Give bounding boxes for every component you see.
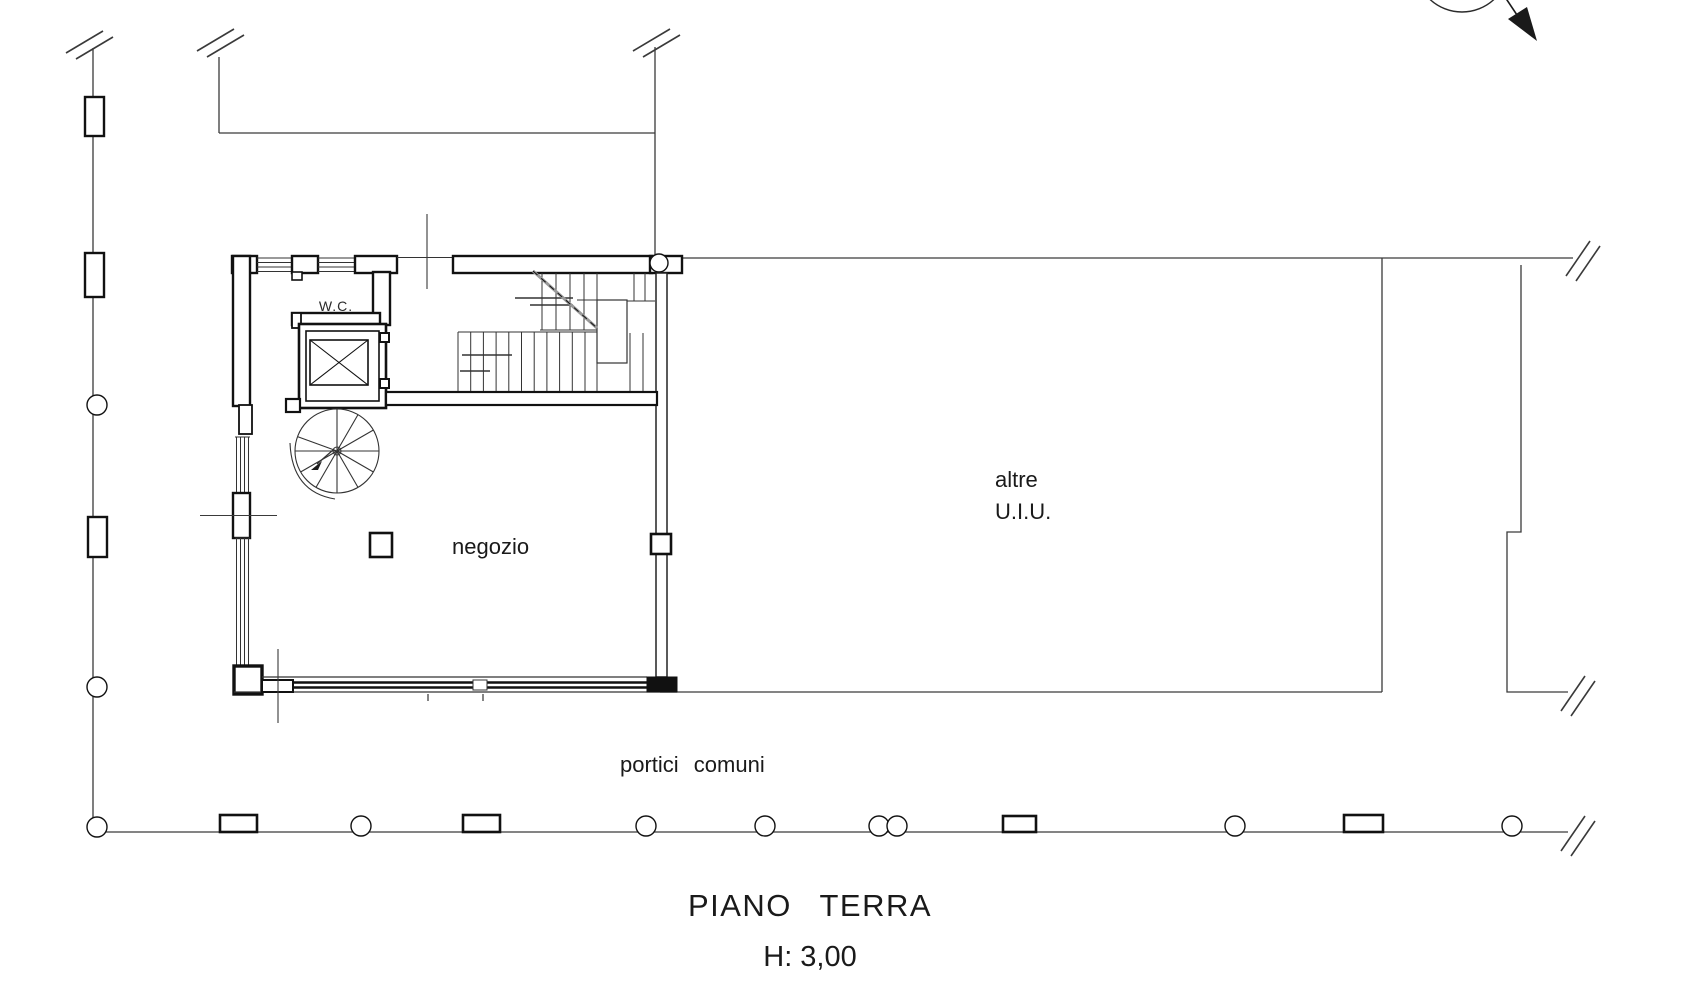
- north-arrow-icon: [1415, 0, 1537, 41]
- round-column: [755, 816, 775, 836]
- room-label-altre: altre: [995, 467, 1038, 492]
- unit-right-wall: [651, 273, 671, 677]
- round-column: [1225, 816, 1245, 836]
- square-pilaster: [1003, 816, 1036, 832]
- room-label-negozio: negozio: [452, 534, 529, 559]
- room-label-uiu: U.I.U.: [995, 499, 1051, 524]
- round-column: [351, 816, 371, 836]
- shop-pillar: [370, 533, 392, 557]
- elevator-shaft: [286, 324, 389, 412]
- spiral-staircase: [290, 409, 379, 499]
- wall-door-stop: [651, 534, 671, 554]
- unit-left-wall: [233, 256, 262, 694]
- stair-hall-wall: [386, 392, 657, 405]
- square-pilaster: [85, 97, 104, 136]
- round-column: [887, 816, 907, 836]
- square-pilaster: [1344, 815, 1383, 832]
- left-boundary-columns: [85, 97, 107, 697]
- square-pilaster: [85, 253, 104, 297]
- portico-colonnade: [87, 815, 1522, 837]
- unit-storefront-wall: [234, 677, 677, 701]
- floorplan-sheet: W.C. negozio altre U.I.U. portici comuni…: [0, 0, 1688, 994]
- floor-height: H: 3,00: [763, 941, 857, 973]
- round-column: [869, 816, 889, 836]
- round-column: [636, 816, 656, 836]
- room-labels: W.C. negozio altre U.I.U. portici comuni: [319, 298, 1051, 777]
- storefront-mullion: [473, 680, 487, 690]
- square-pilaster: [88, 517, 107, 557]
- round-column: [87, 817, 107, 837]
- round-column: [87, 677, 107, 697]
- floor-title: PIANO TERRA: [688, 888, 932, 923]
- floorplan-drawing: W.C. negozio altre U.I.U. portici comuni…: [0, 0, 1688, 994]
- room-label-portici: portici comuni: [620, 752, 765, 777]
- round-column: [87, 395, 107, 415]
- title-block: PIANO TERRA H: 3,00: [688, 888, 932, 973]
- site-boundary-lines: [93, 47, 1573, 832]
- room-label-wc: W.C.: [319, 298, 353, 314]
- unit-top-wall: [232, 254, 682, 280]
- square-pilaster: [463, 815, 500, 832]
- round-column: [1502, 816, 1522, 836]
- square-pilaster: [220, 815, 257, 832]
